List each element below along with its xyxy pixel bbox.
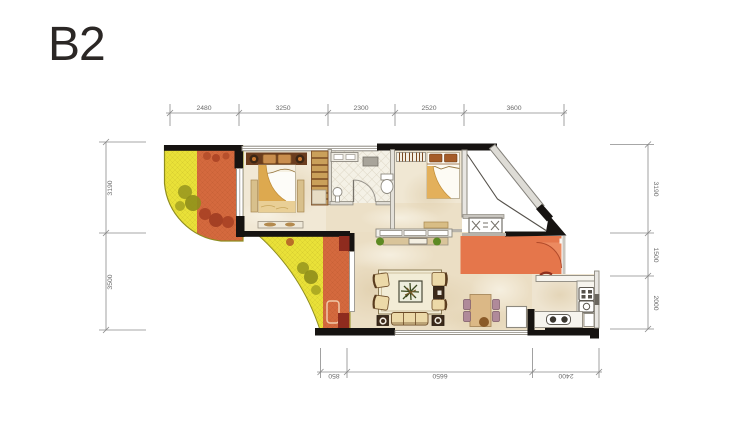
svg-text:2400: 2400 [558,372,573,379]
svg-text:3190: 3190 [652,181,659,196]
svg-text:2000: 2000 [652,295,659,310]
svg-text:2480: 2480 [196,105,211,112]
svg-text:2520: 2520 [421,105,436,112]
svg-text:2300: 2300 [353,105,368,112]
svg-text:B2: B2 [48,18,105,71]
svg-text:6650: 6650 [432,372,447,379]
svg-text:1500: 1500 [652,247,659,262]
svg-text:3500: 3500 [107,274,114,289]
svg-text:850: 850 [328,372,340,379]
svg-text:3600: 3600 [506,105,521,112]
svg-text:3190: 3190 [107,180,114,195]
svg-text:3250: 3250 [275,105,290,112]
